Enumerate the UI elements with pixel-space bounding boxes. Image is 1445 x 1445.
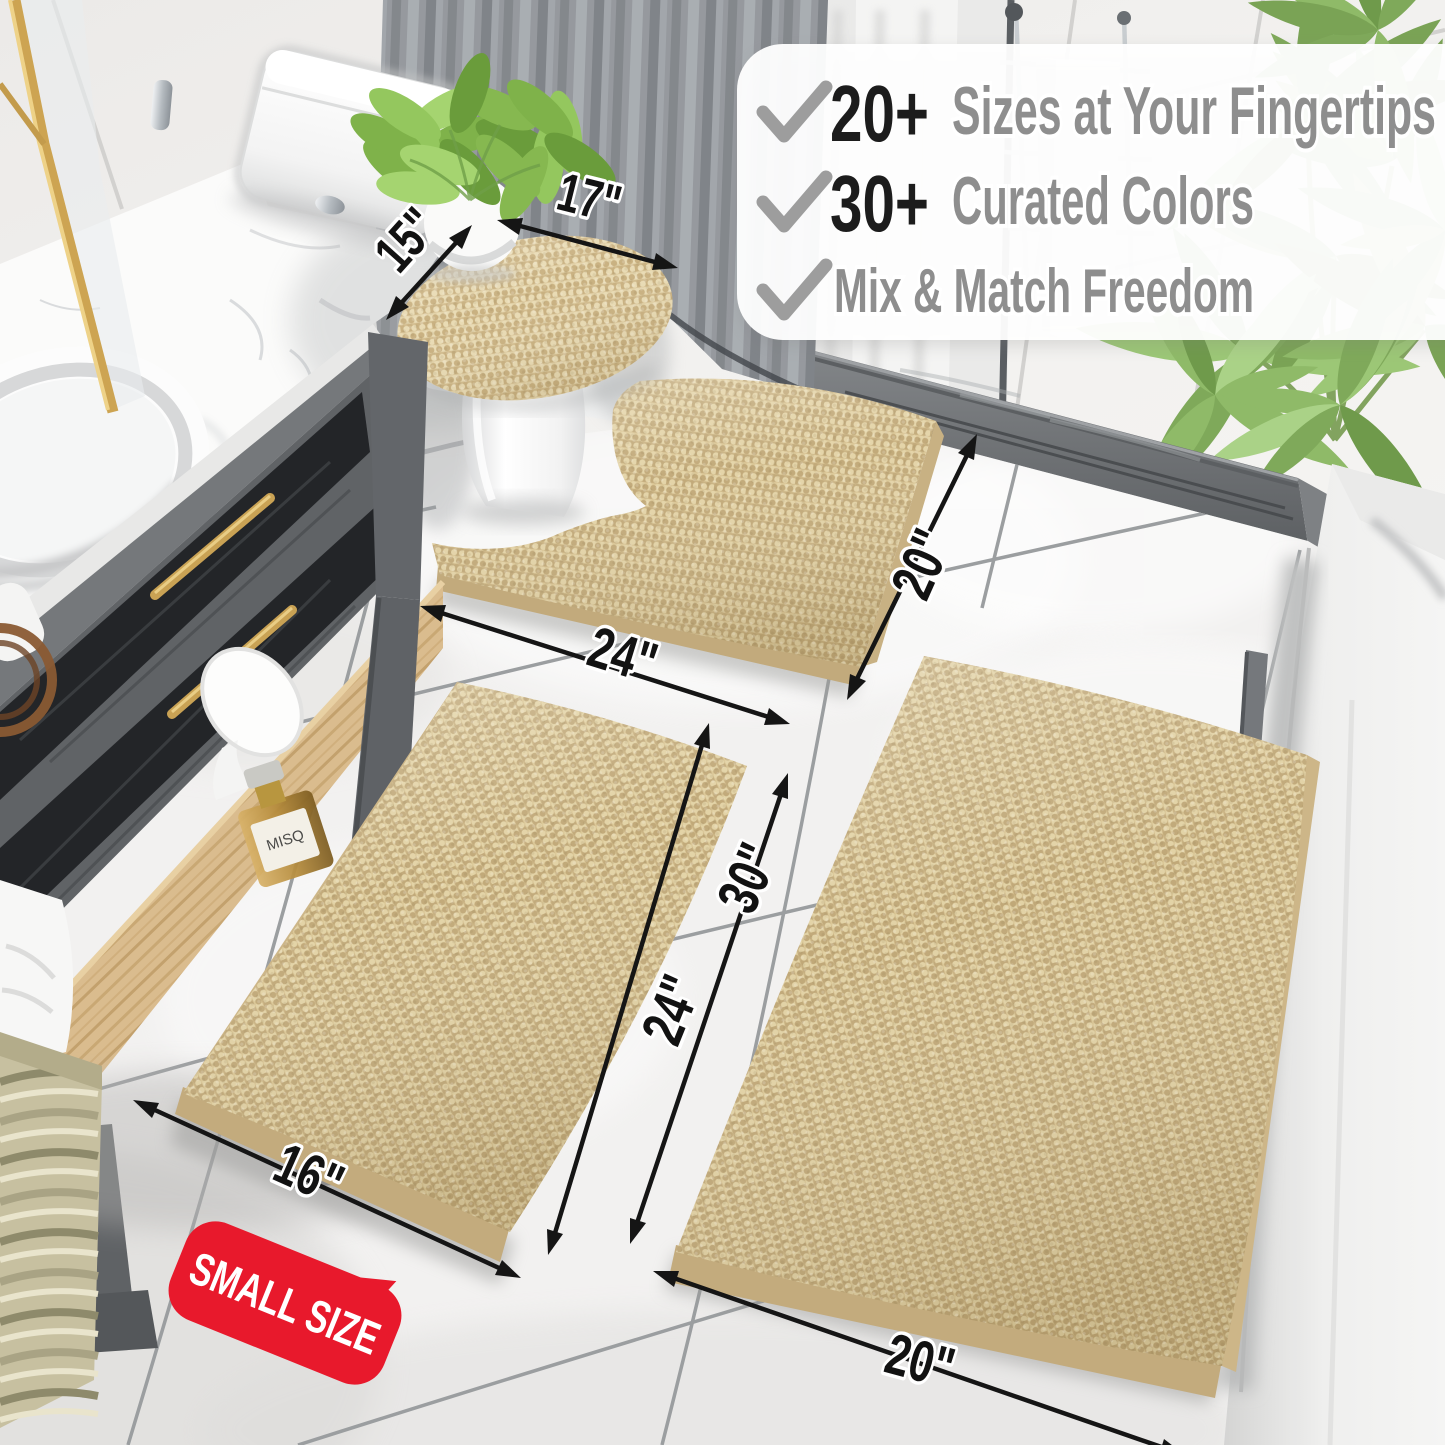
svg-text:30+: 30+ xyxy=(830,159,929,248)
svg-text:Mix & Match Freedom: Mix & Match Freedom xyxy=(834,257,1254,326)
svg-text:20+: 20+ xyxy=(830,69,929,158)
svg-text:Sizes at Your Fingertips: Sizes at Your Fingertips xyxy=(952,73,1436,149)
svg-text:Curated Colors: Curated Colors xyxy=(952,163,1254,239)
